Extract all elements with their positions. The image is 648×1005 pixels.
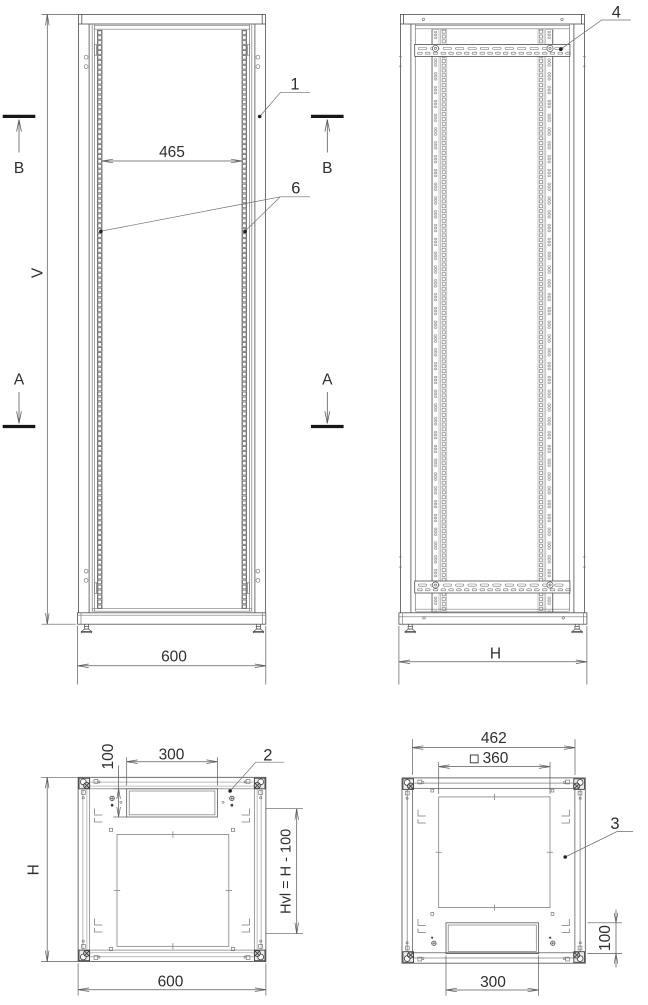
svg-text:465: 465 (159, 144, 185, 161)
svg-text:2: 2 (263, 746, 272, 764)
svg-text:462: 462 (481, 730, 507, 747)
svg-text:100: 100 (100, 743, 117, 769)
svg-text:B: B (322, 160, 332, 177)
svg-text:4: 4 (612, 4, 621, 22)
svg-text:600: 600 (158, 973, 184, 990)
svg-text:A: A (322, 371, 333, 388)
svg-text:H: H (25, 864, 42, 875)
svg-text:100: 100 (597, 925, 614, 951)
svg-text:Hvl = H - 100: Hvl = H - 100 (279, 829, 295, 914)
svg-text:B: B (14, 160, 24, 177)
svg-text:1: 1 (290, 76, 299, 94)
svg-text:V: V (30, 267, 47, 278)
svg-text:300: 300 (480, 974, 506, 991)
svg-text:600: 600 (161, 648, 187, 665)
svg-text:300: 300 (159, 746, 185, 763)
svg-text:3: 3 (610, 815, 619, 833)
svg-text:A: A (14, 371, 25, 388)
svg-text:6: 6 (291, 180, 300, 198)
svg-text:360: 360 (483, 750, 509, 767)
svg-text:H: H (490, 646, 501, 663)
